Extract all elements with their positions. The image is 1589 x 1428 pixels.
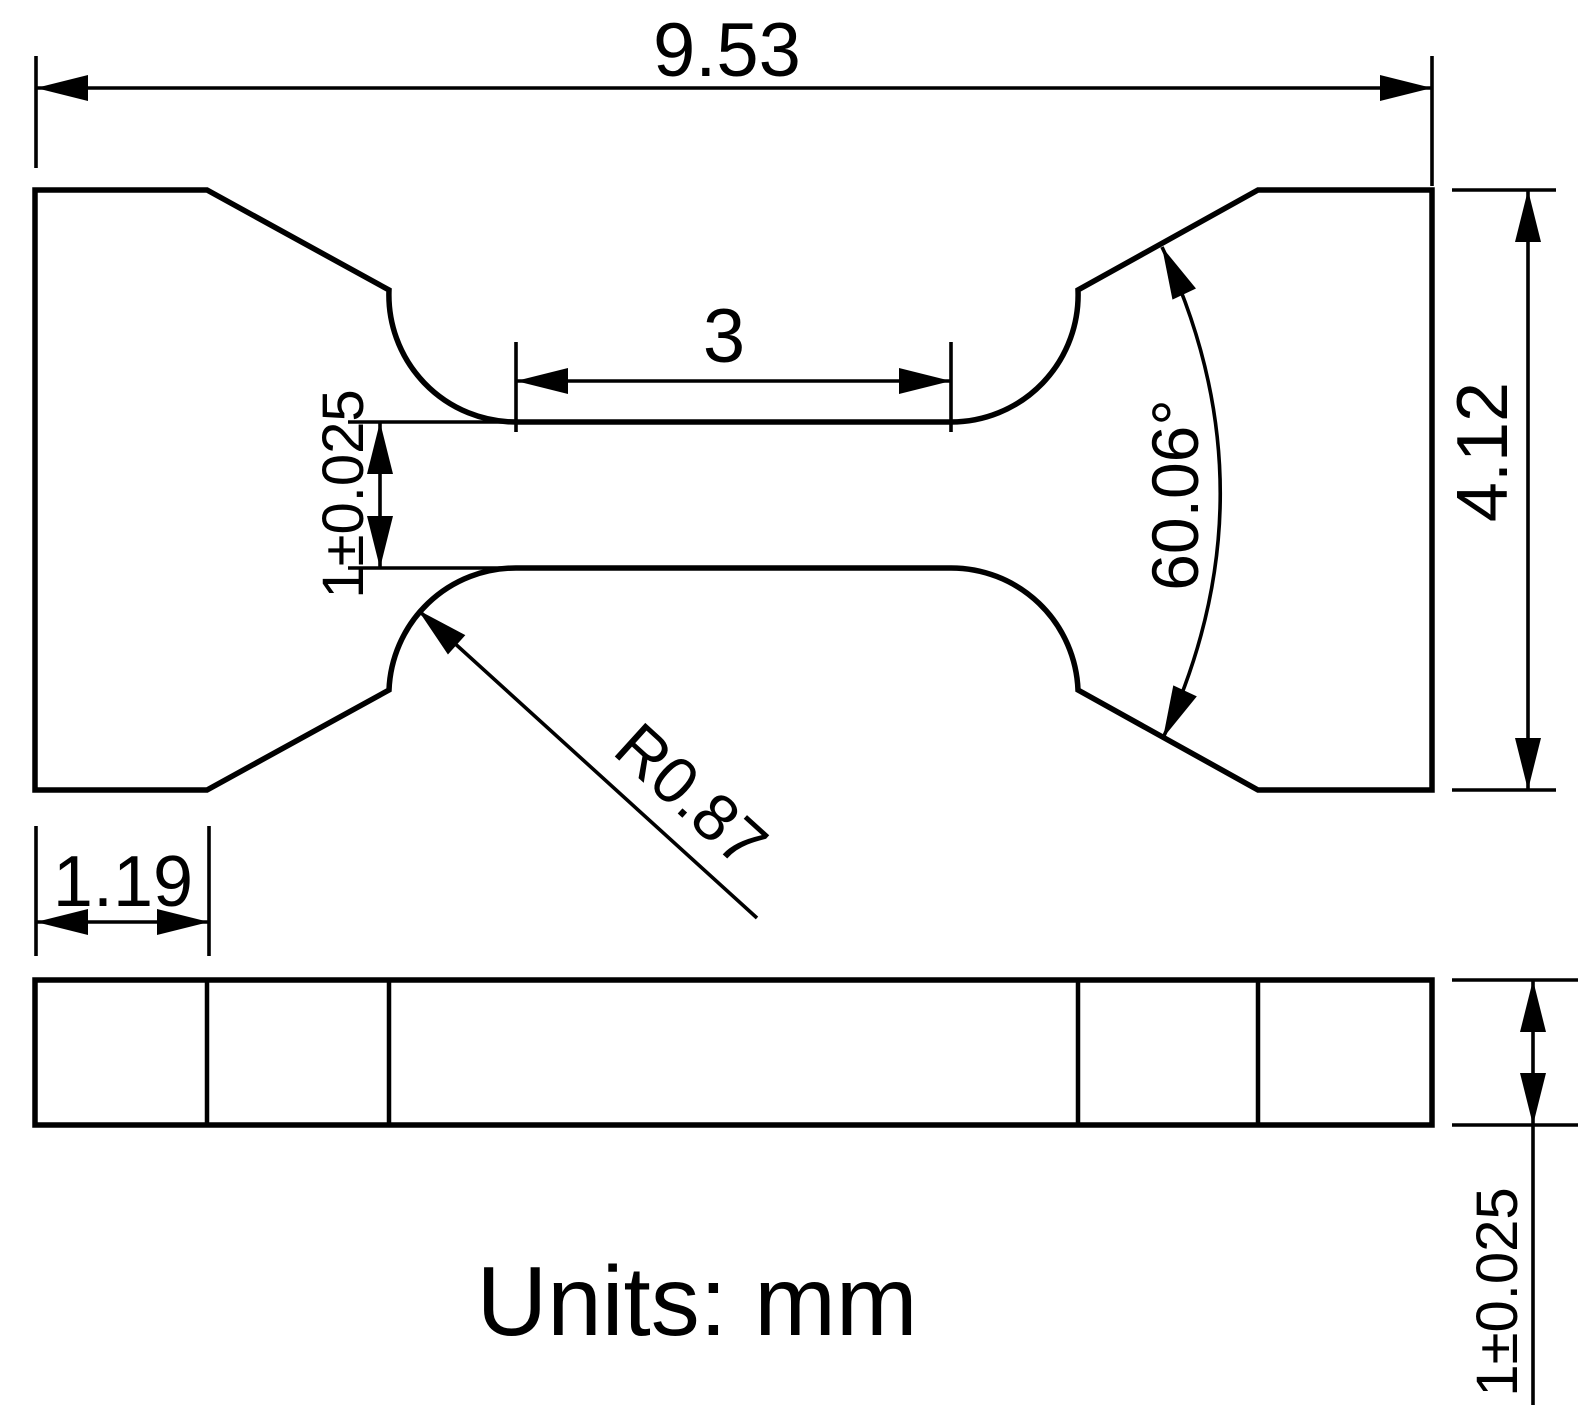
dim-label-overall-width: 4.12 — [1443, 382, 1523, 522]
dim-gauge-width: 1±0.025 — [311, 389, 516, 598]
specimen-profile — [35, 190, 1432, 790]
dim-overall-length: 9.53 — [36, 8, 1432, 186]
dim-label-overall-length: 9.53 — [653, 8, 801, 93]
tensile-specimen-drawing: 9.53 3 1±0.025 4.12 60.06° R0. — [0, 0, 1589, 1428]
drawing-canvas: 9.53 3 1±0.025 4.12 60.06° R0. — [0, 0, 1589, 1428]
arrow-up — [1515, 190, 1541, 242]
arrow-left — [36, 75, 88, 101]
side-view-outline — [35, 980, 1432, 1125]
arrow-arc-top — [1150, 241, 1196, 299]
arrow-down — [1515, 738, 1541, 790]
side-view — [35, 980, 1432, 1125]
dim-label-gauge-length: 3 — [703, 294, 745, 379]
top-view — [35, 190, 1432, 790]
arrow-left — [516, 368, 568, 394]
arrow-up — [1520, 980, 1546, 1032]
arrow-down — [1520, 1073, 1546, 1125]
dim-grip-flat-length: 1.19 — [36, 826, 209, 956]
dim-overall-width: 4.12 — [1443, 190, 1556, 790]
dim-label-grip-flat-length: 1.19 — [53, 842, 193, 922]
dim-label-shoulder-angle: 60.06° — [1138, 399, 1212, 591]
dim-gauge-length: 3 — [516, 294, 951, 432]
dim-thickness: 1±0.025 — [1452, 980, 1578, 1405]
dim-label-fillet-radius: R0.87 — [601, 708, 781, 881]
arrow-right — [899, 368, 951, 394]
dim-label-gauge-width: 1±0.025 — [311, 389, 376, 598]
dim-fillet-radius: R0.87 — [409, 600, 781, 918]
dim-label-thickness: 1±0.025 — [1465, 1187, 1530, 1396]
arrow-right — [1380, 75, 1432, 101]
units-label: Units: mm — [477, 1246, 918, 1356]
dim-shoulder-angle: 60.06° — [1138, 241, 1220, 743]
